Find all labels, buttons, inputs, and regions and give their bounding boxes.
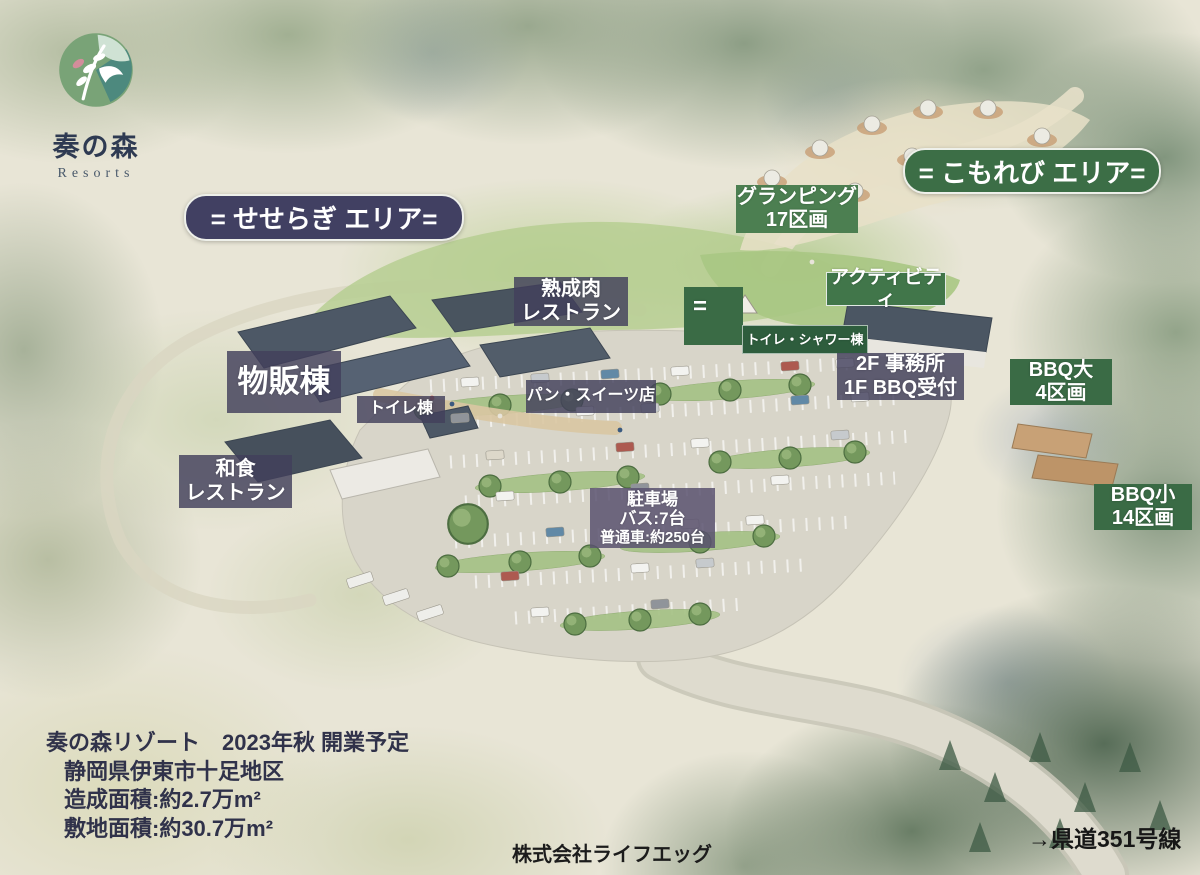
area-banner-komorebi: = こもれび エリア= (903, 148, 1161, 194)
label-glamping-line1: グランピング (736, 186, 858, 209)
label-toilet-shower-building: トイレ・シャワー棟 (742, 325, 868, 354)
label-activity-line1: アクティビティ (827, 267, 945, 311)
label-bakery-sweets-shop: パン・スイーツ店 (526, 380, 656, 413)
label-retail-line1: 物販棟 (227, 364, 341, 400)
project-info-line4: 敷地面積:約30.7万m² (46, 815, 409, 844)
label-office-line1: 2F 事務所 (837, 353, 964, 376)
area-banner-seseragi: = せせらぎ エリア= (184, 194, 464, 241)
label-office-bbq-reception: 2F 事務所 1F BBQ受付 (837, 353, 964, 400)
label-equals-line1: = (693, 293, 707, 321)
label-toilet-line1: トイレ棟 (357, 400, 445, 419)
project-info-line2: 静岡県伊東市十足地区 (46, 758, 409, 787)
label-japanese-restaurant-line1: 和食 (179, 458, 292, 481)
label-bakery-line1: パン・スイーツ店 (526, 387, 656, 406)
label-parking-line3: 普通車:約250台 (590, 529, 715, 546)
label-bbq-small-line1: BBQ小 (1094, 484, 1192, 507)
resort-logo-subtitle: Resorts (40, 166, 152, 182)
label-aged-meat-line1: 熟成肉 (514, 278, 628, 301)
label-toilet-shower-line1: トイレ・シャワー棟 (743, 332, 867, 347)
label-office-line2: 1F BBQ受付 (837, 377, 964, 400)
label-parking-line2: バス:7台 (590, 509, 715, 529)
label-aged-meat-line2: レストラン (514, 302, 628, 325)
label-activity: アクティビティ (826, 272, 946, 306)
project-info: 奏の森リゾート 2023年秋 開業予定 静岡県伊東市十足地区 造成面積:約2.7… (46, 729, 409, 843)
label-parking-line1: 駐車場 (590, 490, 715, 510)
road-note: →県道351号線 (1028, 820, 1181, 854)
label-glamping: グランピング 17区画 (736, 185, 858, 233)
resort-logo: 奏の森 Resorts (40, 22, 152, 182)
label-bbq-large-line2: 4区画 (1010, 382, 1112, 405)
label-japanese-restaurant: 和食 レストラン (179, 455, 292, 508)
bbq-building-2 (1032, 455, 1118, 487)
label-parking: 駐車場 バス:7台 普通車:約250台 (590, 488, 715, 548)
resort-logo-name: 奏の森 (40, 125, 152, 164)
label-bbq-small-line2: 14区画 (1094, 507, 1192, 530)
label-toilet-building: トイレ棟 (357, 396, 445, 423)
label-aged-meat-restaurant: 熟成肉 レストラン (514, 277, 628, 326)
label-bbq-large: BBQ大 4区画 (1010, 359, 1112, 405)
label-bbq-large-line1: BBQ大 (1010, 359, 1112, 382)
label-glamping-line2: 17区画 (736, 209, 858, 232)
label-japanese-restaurant-line2: レストラン (179, 482, 292, 505)
bbq-building-1 (1012, 424, 1092, 458)
label-bbq-small: BBQ小 14区画 (1094, 484, 1192, 530)
project-info-line3: 造成面積:約2.7万m² (46, 786, 409, 815)
resort-logo-mark (48, 22, 144, 118)
project-info-line1: 奏の森リゾート 2023年秋 開業予定 (46, 729, 409, 758)
label-equals-marker: = (684, 287, 743, 345)
resort-map-poster: 奏の森 Resorts = せせらぎ エリア= = こもれび エリア= グランピ… (0, 0, 1200, 875)
company-name: 株式会社ライフエッグ (512, 838, 712, 867)
label-retail-building: 物販棟 (227, 351, 341, 413)
